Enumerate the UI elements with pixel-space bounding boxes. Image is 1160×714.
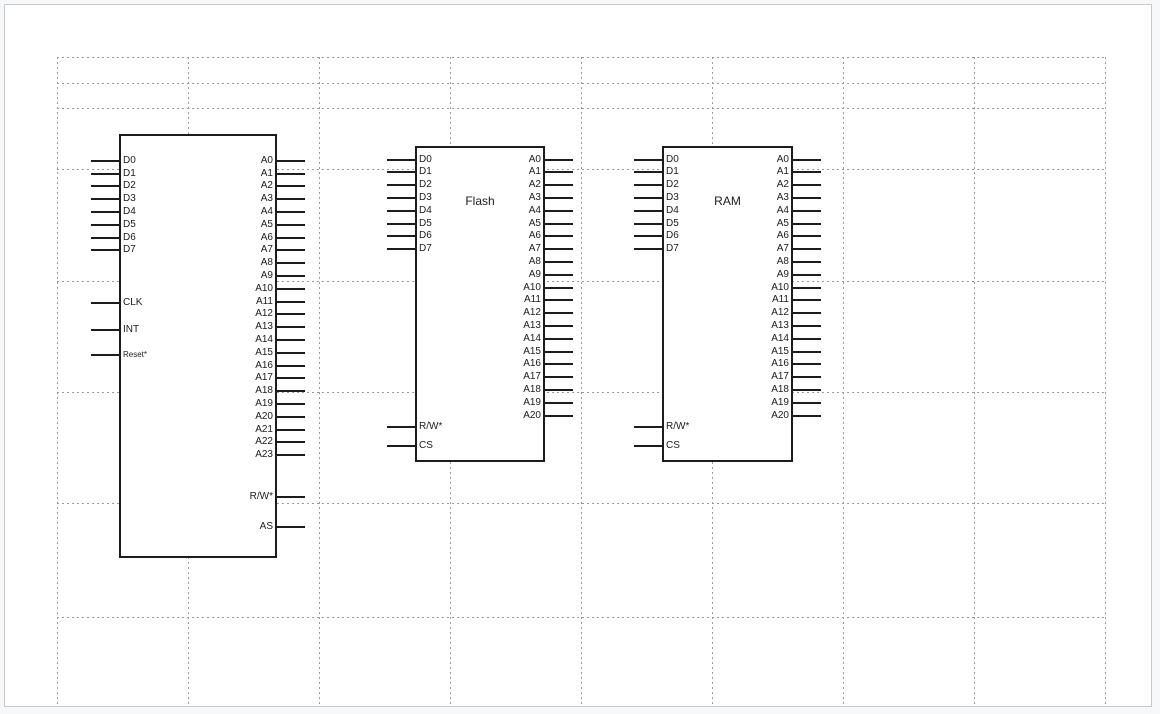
pin-stub-flash-a3	[543, 197, 573, 199]
pin-stub-cpu-a0	[275, 160, 305, 162]
pin-stub-cpu-a11	[275, 301, 305, 303]
pin-stub-ram-r-w	[634, 426, 664, 428]
pin-stub-flash-a1	[543, 171, 573, 173]
pin-stub-cpu-a2	[275, 185, 305, 187]
pin-stub-flash-a9	[543, 274, 573, 276]
pin-stub-ram-d5	[634, 223, 664, 225]
pin-stub-cpu-d0	[91, 160, 121, 162]
pin-stub-cpu-a22	[275, 441, 305, 443]
pin-stub-cpu-clk	[91, 302, 121, 304]
pin-stub-cpu-a19	[275, 403, 305, 405]
pin-stub-flash-d3	[387, 197, 417, 199]
pin-stub-ram-d6	[634, 235, 664, 237]
pin-stub-cpu-as	[275, 526, 305, 528]
pin-stub-flash-d5	[387, 223, 417, 225]
chip-body-flash[interactable]	[415, 146, 545, 462]
pin-stub-flash-a17	[543, 376, 573, 378]
pin-stub-ram-a9	[791, 274, 821, 276]
schematic-canvas: D0D1D2D3D4D5D6D7CLKINTReset*A0A1A2A3A4A5…	[0, 0, 1160, 714]
pin-stub-cpu-d7	[91, 249, 121, 251]
pin-stub-ram-d3	[634, 197, 664, 199]
pin-stub-ram-d0	[634, 159, 664, 161]
pin-stub-cpu-d2	[91, 185, 121, 187]
pin-stub-cpu-d6	[91, 237, 121, 239]
pin-stub-ram-a12	[791, 312, 821, 314]
pin-stub-cpu-a16	[275, 365, 305, 367]
pin-stub-ram-a6	[791, 235, 821, 237]
pin-stub-cpu-int	[91, 329, 121, 331]
pin-stub-flash-a0	[543, 159, 573, 161]
pin-stub-cpu-a20	[275, 416, 305, 418]
pin-stub-flash-a7	[543, 248, 573, 250]
chip-cpu[interactable]: D0D1D2D3D4D5D6D7CLKINTReset*A0A1A2A3A4A5…	[91, 134, 305, 558]
pin-stub-cpu-a6	[275, 237, 305, 239]
pin-stub-ram-a14	[791, 338, 821, 340]
pin-stub-flash-a11	[543, 299, 573, 301]
pin-stub-flash-a12	[543, 312, 573, 314]
pin-stub-cpu-a14	[275, 339, 305, 341]
pin-stub-cpu-d5	[91, 224, 121, 226]
pin-stub-ram-d7	[634, 248, 664, 250]
pin-stub-cpu-a17	[275, 377, 305, 379]
pin-stub-cpu-d3	[91, 198, 121, 200]
pin-stub-flash-a14	[543, 338, 573, 340]
chip-flash[interactable]: FlashD0D1D2D3D4D5D6D7R/W*CSA0A1A2A3A4A5A…	[387, 146, 573, 462]
pin-stub-cpu-a13	[275, 326, 305, 328]
pin-stub-ram-cs	[634, 445, 664, 447]
pin-stub-ram-a20	[791, 415, 821, 417]
pin-stub-cpu-a18	[275, 390, 305, 392]
pin-stub-ram-a2	[791, 184, 821, 186]
pin-stub-flash-a5	[543, 223, 573, 225]
pin-stub-cpu-reset	[91, 354, 121, 356]
pin-stub-flash-a10	[543, 287, 573, 289]
pin-stub-ram-a13	[791, 325, 821, 327]
chip-body-ram[interactable]	[662, 146, 793, 462]
pin-stub-cpu-a15	[275, 352, 305, 354]
pin-stub-cpu-r-w	[275, 496, 305, 498]
pin-stub-cpu-a21	[275, 429, 305, 431]
pin-stub-flash-d7	[387, 248, 417, 250]
pin-stub-cpu-d4	[91, 211, 121, 213]
pin-stub-ram-a15	[791, 351, 821, 353]
pin-stub-flash-d4	[387, 210, 417, 212]
pin-stub-cpu-a3	[275, 198, 305, 200]
pin-stub-cpu-a7	[275, 249, 305, 251]
pin-stub-cpu-a1	[275, 173, 305, 175]
pin-stub-ram-a4	[791, 210, 821, 212]
chip-ram[interactable]: RAMD0D1D2D3D4D5D6D7R/W*CSA0A1A2A3A4A5A6A…	[634, 146, 821, 462]
pin-stub-cpu-a9	[275, 275, 305, 277]
pin-stub-flash-d2	[387, 184, 417, 186]
pin-stub-ram-a1	[791, 171, 821, 173]
pin-stub-ram-d2	[634, 184, 664, 186]
pin-stub-flash-a19	[543, 402, 573, 404]
pin-stub-ram-a19	[791, 402, 821, 404]
pin-stub-ram-a0	[791, 159, 821, 161]
pin-stub-ram-a5	[791, 223, 821, 225]
pin-stub-ram-a7	[791, 248, 821, 250]
pin-stub-flash-a4	[543, 210, 573, 212]
pin-stub-ram-a3	[791, 197, 821, 199]
pin-stub-cpu-a8	[275, 262, 305, 264]
pin-stub-ram-d4	[634, 210, 664, 212]
pin-stub-flash-a13	[543, 325, 573, 327]
pin-stub-ram-a11	[791, 299, 821, 301]
pin-stub-cpu-a4	[275, 211, 305, 213]
pin-stub-flash-a2	[543, 184, 573, 186]
pin-stub-cpu-a5	[275, 224, 305, 226]
pin-stub-flash-a15	[543, 351, 573, 353]
pin-stub-flash-a8	[543, 261, 573, 263]
pin-stub-flash-d0	[387, 159, 417, 161]
pin-stub-flash-a6	[543, 235, 573, 237]
pin-stub-ram-a17	[791, 376, 821, 378]
pin-stub-flash-d6	[387, 235, 417, 237]
pin-stub-cpu-a12	[275, 313, 305, 315]
pin-stub-flash-d1	[387, 171, 417, 173]
pin-stub-cpu-a23	[275, 454, 305, 456]
pin-stub-flash-r-w	[387, 426, 417, 428]
pin-stub-flash-a20	[543, 415, 573, 417]
pin-stub-cpu-d1	[91, 173, 121, 175]
pin-stub-ram-a16	[791, 363, 821, 365]
chip-body-cpu[interactable]	[119, 134, 277, 558]
pin-stub-cpu-a10	[275, 288, 305, 290]
pin-stub-flash-cs	[387, 445, 417, 447]
pin-stub-ram-a10	[791, 287, 821, 289]
pin-stub-ram-a8	[791, 261, 821, 263]
pin-stub-flash-a18	[543, 389, 573, 391]
pin-stub-ram-a18	[791, 389, 821, 391]
pin-stub-ram-d1	[634, 171, 664, 173]
application-window: D0D1D2D3D4D5D6D7CLKINTReset*A0A1A2A3A4A5…	[0, 0, 1160, 714]
pin-stub-flash-a16	[543, 363, 573, 365]
